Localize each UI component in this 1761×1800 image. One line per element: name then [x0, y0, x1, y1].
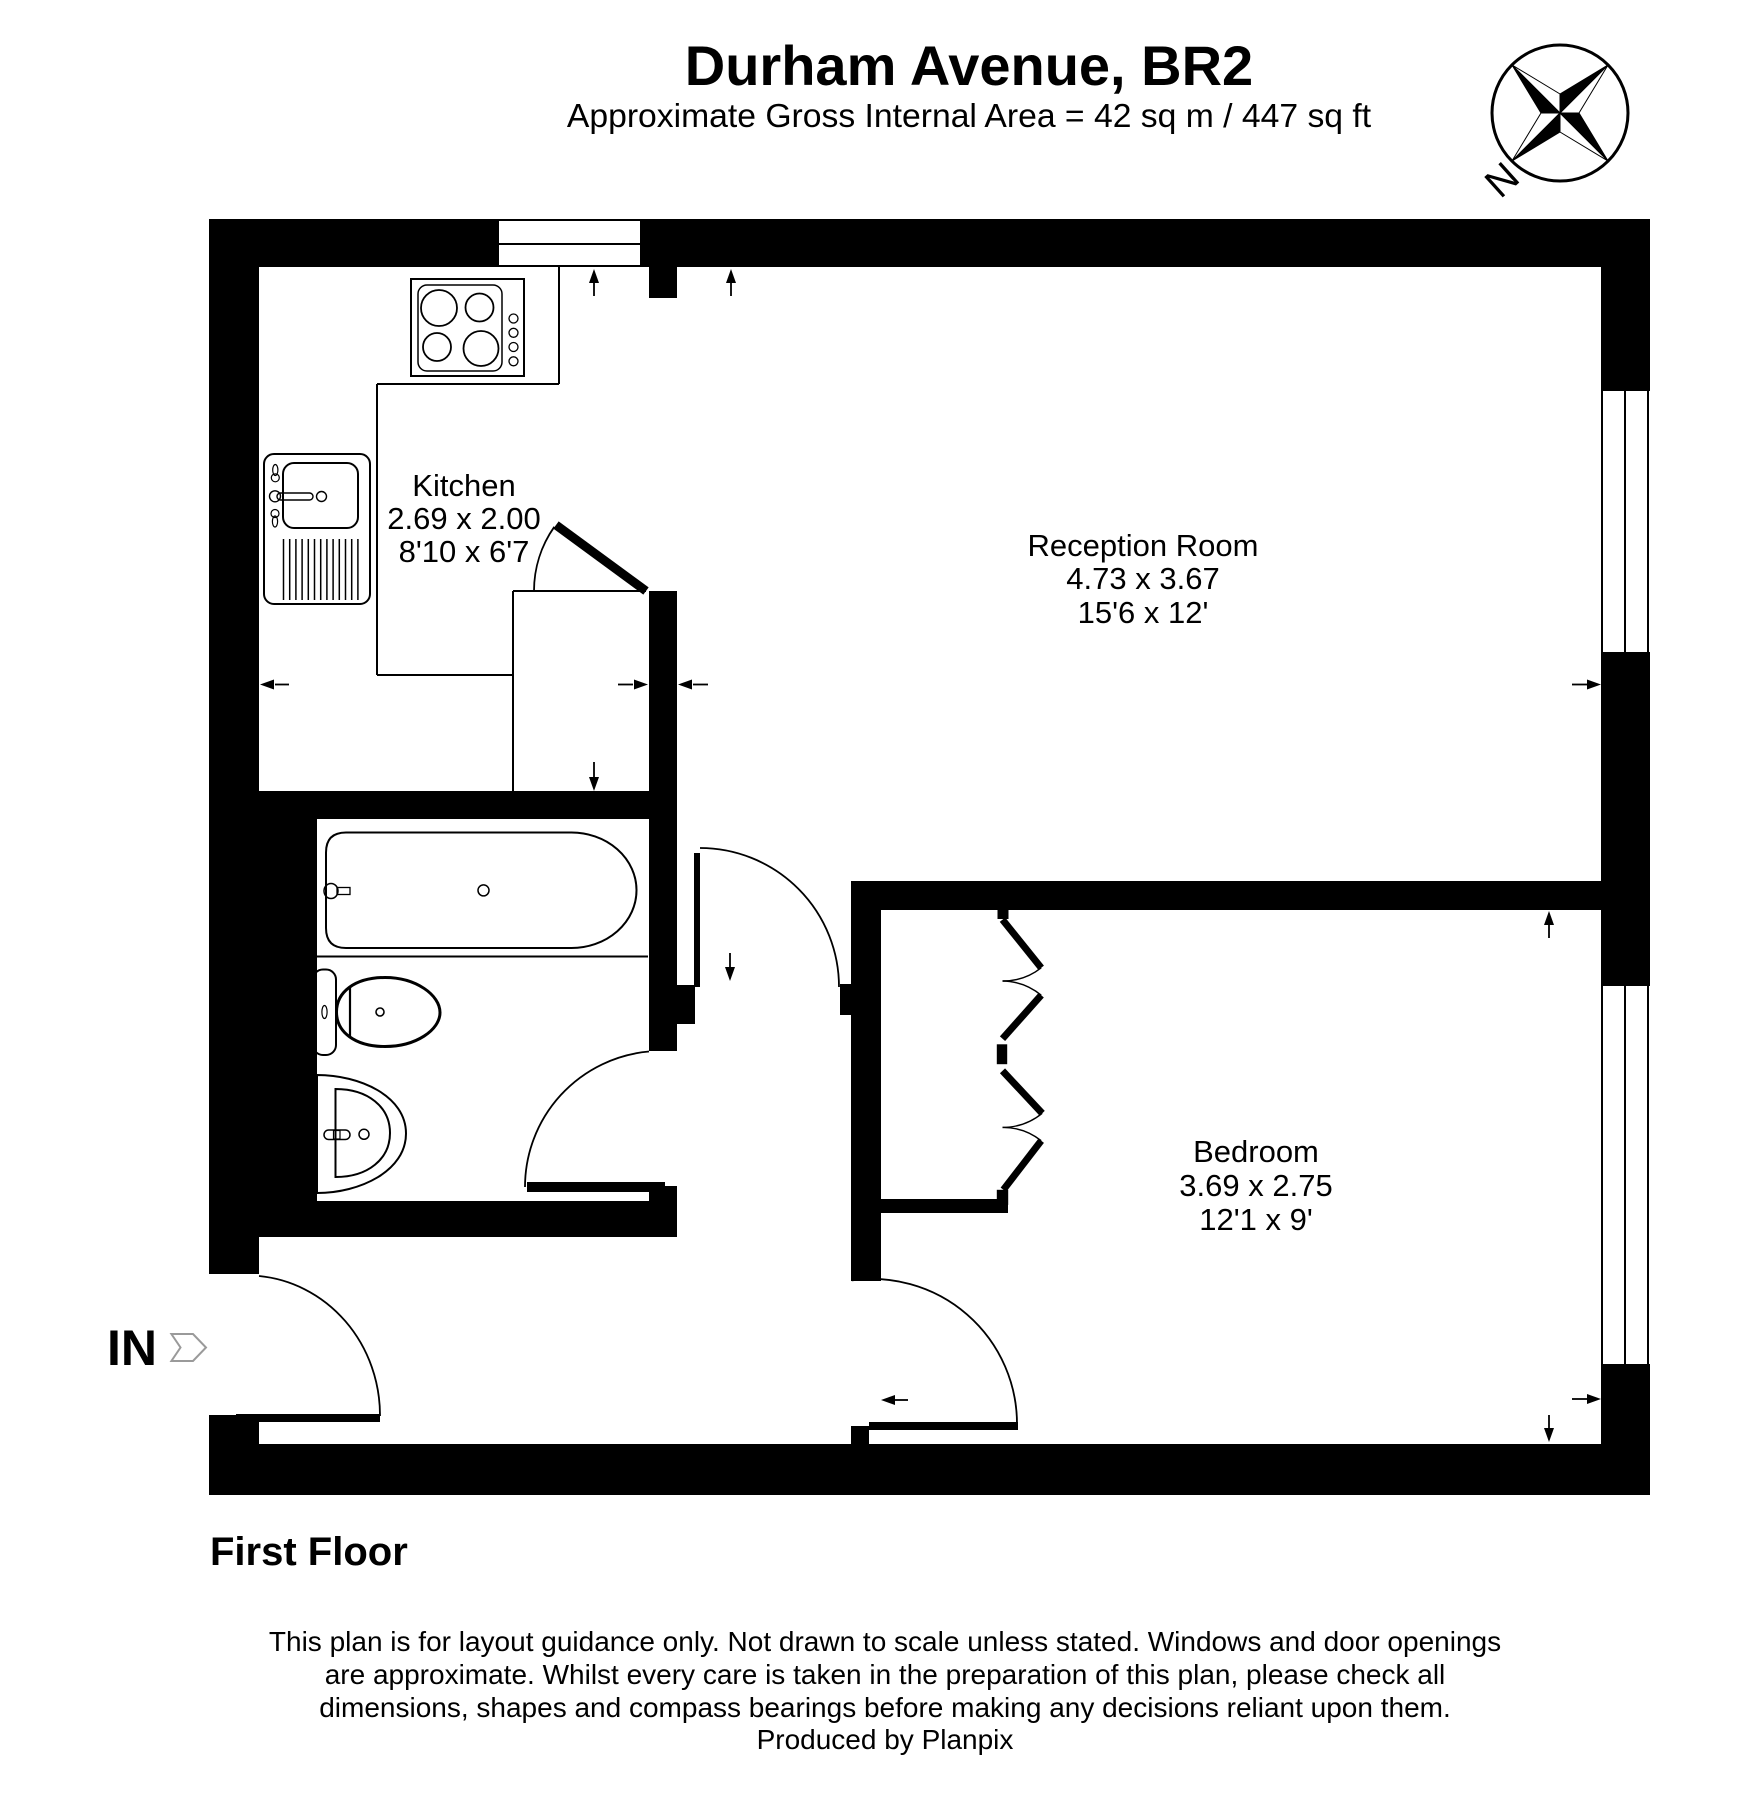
- svg-text:Bedroom: Bedroom: [1193, 1134, 1319, 1169]
- svg-text:3.69 x 2.75: 3.69 x 2.75: [1179, 1168, 1332, 1203]
- svg-text:dimensions, shapes and compass: dimensions, shapes and compass bearings …: [319, 1692, 1451, 1723]
- svg-text:are approximate. Whilst every: are approximate. Whilst every care is ta…: [325, 1659, 1446, 1690]
- svg-text:15'6 x 12': 15'6 x 12': [1078, 595, 1209, 630]
- svg-text:4.73 x 3.67: 4.73 x 3.67: [1066, 561, 1219, 596]
- svg-text:12'1 x 9': 12'1 x 9': [1199, 1202, 1313, 1237]
- svg-text:This plan is for layout guidan: This plan is for layout guidance only. N…: [269, 1626, 1501, 1657]
- svg-text:Produced by Planpix: Produced by Planpix: [757, 1724, 1014, 1755]
- svg-text:Reception Room: Reception Room: [1028, 528, 1259, 563]
- svg-text:IN: IN: [107, 1320, 157, 1376]
- svg-text:8'10 x 6'7: 8'10 x 6'7: [399, 534, 530, 569]
- svg-text:Approximate Gross Internal Are: Approximate Gross Internal Area = 42 sq …: [567, 97, 1372, 135]
- svg-text:First Floor: First Floor: [210, 1530, 408, 1574]
- svg-text:Kitchen: Kitchen: [412, 468, 515, 503]
- svg-text:2.69 x 2.00: 2.69 x 2.00: [387, 501, 540, 536]
- svg-text:Durham Avenue, BR2: Durham Avenue, BR2: [685, 34, 1253, 97]
